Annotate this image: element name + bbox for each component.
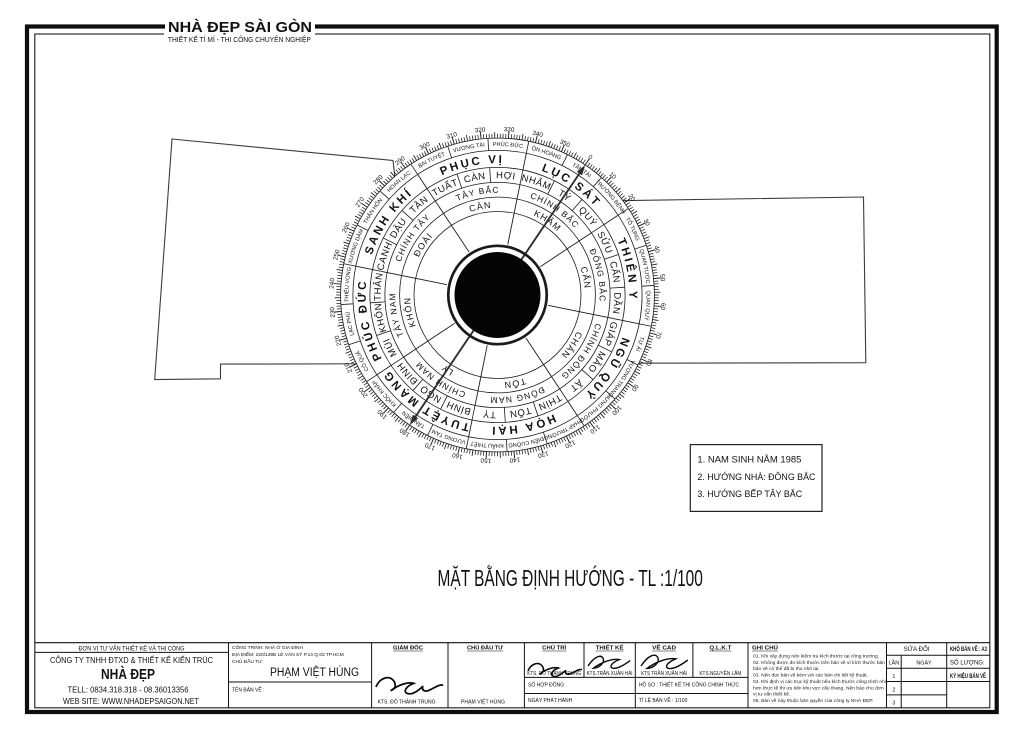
svg-text:270: 270 [354,196,366,209]
svg-text:110: 110 [588,423,601,435]
svg-text:04. Khi định vị các trục kỹ th: 04. Khi định vị các trục kỹ thuật nếu kí… [753,678,888,685]
svg-text:HỢI: HỢI [496,170,516,182]
svg-text:150: 150 [480,456,492,464]
svg-text:290: 290 [394,155,407,167]
svg-text:TỈ LỆ BẢN VẼ : 1/100: TỈ LỆ BẢN VẼ : 1/100 [639,696,688,704]
svg-text:PHẠM VIỆT HÙNG: PHẠM VIỆT HÙNG [270,666,359,679]
svg-text:20: 20 [626,193,636,203]
svg-text:05. Bản vẽ này thuộc bản quyền: 05. Bản vẽ này thuộc bản quyền của công … [753,697,873,704]
svg-text:VẼ CAD: VẼ CAD [652,645,676,652]
svg-text:01. Khi xây dựng nên kiểm tra: 01. Khi xây dựng nên kiểm tra kích thước… [753,653,879,660]
svg-text:80: 80 [644,358,653,368]
svg-text:220: 220 [334,334,344,347]
svg-text:KÝ HIỆU BẢN VẼ: KÝ HIỆU BẢN VẼ [950,672,986,680]
svg-text:CHỦ ĐẦU TƯ:: CHỦ ĐẦU TƯ: [232,658,263,665]
svg-text:1: 1 [892,674,895,680]
svg-text:hơn thực tế thì ưu tiên khu vự: hơn thực tế thì ưu tiên khu vực cầu than… [753,685,884,691]
svg-text:330: 330 [504,126,516,134]
svg-text:CÔNG TY TNHH ĐTXD & THIẾT KẾ K: CÔNG TY TNHH ĐTXD & THIẾT KẾ KIẾN TRÚC [50,655,213,665]
svg-text:260: 260 [341,221,352,234]
svg-text:bản vẽ có thể đã bị thu nhỏ lạ: bản vẽ có thể đã bị thu nhỏ lại. [753,665,820,672]
svg-text:310: 310 [446,131,459,141]
svg-text:350: 350 [559,139,572,150]
svg-text:SỐ LƯỢNG:: SỐ LƯỢNG: [950,660,985,667]
svg-text:3. HƯỚNG BẾP TÂY BẮC: 3. HƯỚNG BẾP TÂY BẮC [697,489,802,500]
svg-text:50: 50 [658,274,666,282]
svg-text:320: 320 [475,126,487,134]
svg-text:HỒ SƠ : THIẾT KẾ THI CÔNG CHÍN: HỒ SƠ : THIẾT KẾ THI CÔNG CHÍNH THỨC [639,682,739,689]
svg-text:WEB SITE: WWW.NHADEPSAIGON.NET: WEB SITE: WWW.NHADEPSAIGON.NET [63,696,199,706]
svg-text:230: 230 [329,306,337,318]
svg-text:GHI CHÚ: GHI CHÚ [752,645,778,652]
svg-text:03. Nên đọc bản vẽ kèm với các: 03. Nên đọc bản vẽ kèm với các bản chi t… [753,673,868,679]
svg-text:LẦN: LẦN [889,660,900,667]
svg-text:SỬA ĐỔI: SỬA ĐỔI [904,646,930,653]
svg-text:2: 2 [892,687,895,693]
svg-text:GIÁM ĐỐC: GIÁM ĐỐC [393,645,423,652]
svg-text:THIẾT KẾ: THIẾT KẾ [596,645,624,652]
svg-text:90: 90 [630,383,640,393]
svg-text:02. Không được đo kích thước t: 02. Không được đo kích thước trên bản vẽ… [753,660,885,666]
svg-text:DẦN: DẦN [610,292,622,315]
svg-text:3: 3 [892,700,895,706]
svg-text:CHỦ TRÌ: CHỦ TRÌ [542,644,567,652]
svg-text:1. NAM SINH NĂM 1985: 1. NAM SINH NĂM 1985 [697,455,801,466]
svg-text:CÔNG TRÌNH: NHÀ Ở GIA ĐÌNH: CÔNG TRÌNH: NHÀ Ở GIA ĐÌNH [232,644,303,651]
svg-text:PHẠM VIỆT HÙNG: PHẠM VIỆT HÙNG [461,698,505,706]
svg-text:170: 170 [423,441,436,452]
svg-text:TỴ: TỴ [482,408,496,420]
svg-text:40: 40 [652,245,661,254]
svg-text:NGÀY PHÁT HÀNH: NGÀY PHÁT HÀNH [528,697,573,704]
svg-text:200: 200 [357,386,369,399]
svg-text:140: 140 [509,455,521,463]
svg-text:180: 180 [398,426,411,438]
svg-text:TELL: 0834.318.318 - 08.360133: TELL: 0834.318.318 - 08.36013356 [68,685,189,695]
svg-text:NHÀ ĐẸP: NHÀ ĐẸP [101,666,155,683]
svg-text:ĐƠN VỊ TƯ VẤN THIẾT KẾ VÀ THI: ĐƠN VỊ TƯ VẤN THIẾT KẾ VÀ THI CÔNG [79,642,185,652]
svg-text:240: 240 [329,277,337,289]
svg-text:2. HƯỚNG NHÀ: ĐÔNG BẮC: 2. HƯỚNG NHÀ: ĐÔNG BẮC [697,472,815,483]
svg-text:Q.L.K.T: Q.L.K.T [709,646,732,652]
svg-text:60: 60 [659,303,667,311]
svg-text:MẶT BẰNG ĐỊNH HƯỚNG - TL :1/10: MẶT BẰNG ĐỊNH HƯỚNG - TL :1/100 [438,564,703,591]
svg-text:NGÀY: NGÀY [916,660,932,667]
svg-text:CHỦ ĐẦU TƯ: CHỦ ĐẦU TƯ [467,645,504,652]
svg-text:TÊN BẢN VẼ :: TÊN BẢN VẼ : [232,686,265,694]
svg-text:ĐỊA ĐIỂM: 220/139B LÊ VĂN SỸ P: ĐỊA ĐIỂM: 220/139B LÊ VĂN SỸ P.14 Q.03 T… [232,650,344,658]
svg-text:130: 130 [537,449,550,459]
svg-text:vị tư vấn thiết kế.: vị tư vấn thiết kế. [753,692,790,698]
svg-text:KTS. ĐỖ THÀNH TRUNG: KTS. ĐỖ THÀNH TRUNG [378,699,436,706]
svg-text:30: 30 [642,218,652,228]
svg-text:KHỔ BẢN VẼ : A3: KHỔ BẢN VẼ : A3 [950,644,987,653]
svg-text:70: 70 [654,331,663,340]
svg-text:SỐ HỢP ĐỒNG: SỐ HỢP ĐỒNG [528,682,564,689]
svg-text:NHÀ ĐẸP SÀI GÒN: NHÀ ĐẸP SÀI GÒN [168,18,312,36]
svg-text:KTS.NGUYỄN LÂM: KTS.NGUYỄN LÂM [699,670,741,677]
svg-text:KTS TRẦN XUÂN HẢI: KTS TRẦN XUÂN HẢI [641,670,687,677]
svg-text:KTS.TRẦN XUÂN HẢI: KTS.TRẦN XUÂN HẢI [587,670,633,677]
